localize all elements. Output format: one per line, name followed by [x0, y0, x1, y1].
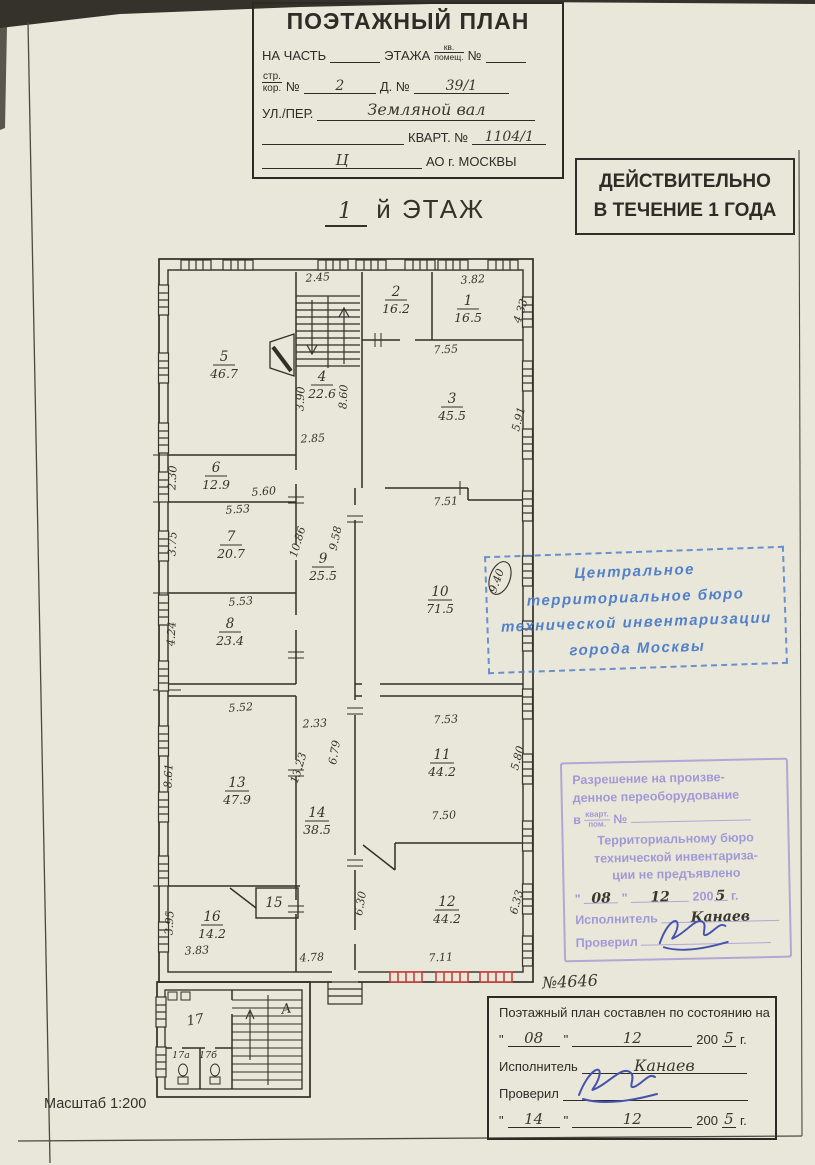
dim-label: 3.82 — [460, 272, 485, 287]
room-label-16: 1614.2 — [198, 909, 226, 941]
date1-month: 12 — [572, 1031, 692, 1047]
label-ul-per: УЛ./ПЕР. — [262, 106, 313, 121]
svg-text:71.5: 71.5 — [426, 601, 454, 616]
dim-label: 7.50 — [431, 808, 456, 822]
dim-label: 4.24 — [164, 621, 178, 647]
permit-line-3: в кварт.пом. № — [573, 806, 777, 830]
date2-year-hand: 5 — [722, 1112, 736, 1128]
ao-value: Ц — [262, 153, 422, 169]
room-label-9: 925.5 — [308, 551, 337, 583]
blank-floor-part — [330, 47, 380, 63]
dim-label: 7.53 — [433, 712, 458, 726]
fraction-kvart-pom: кварт.пом. — [584, 811, 610, 830]
dim-label: 3.95 — [162, 910, 176, 935]
porch-steps — [328, 982, 362, 1004]
windows-left-wall — [156, 285, 169, 1077]
dim-label: 2.33 — [301, 716, 327, 730]
header-row-ao: Ц АО г. МОСКВЫ — [262, 153, 554, 169]
checker-signature — [571, 1061, 661, 1105]
dim-label: 6.79 — [326, 739, 343, 765]
date1-day: 08 — [508, 1031, 560, 1047]
label-ao-moscow: АО г. МОСКВЫ — [426, 154, 517, 169]
entrance-vestibule — [270, 334, 294, 376]
street-value: Земляной вал — [317, 102, 535, 121]
dim-label: 5.53 — [225, 502, 250, 517]
svg-text:9: 9 — [319, 551, 328, 567]
svg-text:7: 7 — [227, 529, 236, 545]
toilet-symbol — [178, 1064, 188, 1084]
svg-text:16: 16 — [203, 909, 221, 925]
permit-date-row: " 08 " 12 2005 г. — [575, 885, 779, 908]
dim-label: 6.30 — [352, 890, 369, 916]
label-na-chast: НА ЧАСТЬ — [262, 48, 326, 63]
fixture-box — [168, 992, 177, 1000]
permit-line-2: денное переоборудование — [573, 785, 777, 807]
svg-text:5: 5 — [220, 349, 229, 365]
svg-text:23.4: 23.4 — [215, 633, 244, 648]
floor-title: 1 й ЭТАЖ — [325, 194, 485, 227]
label-kvart-no: КВАРТ. № — [408, 130, 468, 145]
room-label-7: 720.7 — [216, 529, 245, 561]
svg-text:8: 8 — [226, 616, 235, 632]
svg-text:14.2: 14.2 — [198, 926, 226, 941]
room-label-11: 1144.2 — [427, 747, 456, 779]
dim-label: 5.52 — [228, 700, 253, 715]
validity-line-2: В ТЕЧЕНИЕ 1 ГОДА — [581, 197, 789, 226]
date1-year-hand: 5 — [722, 1031, 736, 1047]
scanned-floor-plan-page: { "misc": { "quote": "\"" }, "header_box… — [0, 0, 815, 1165]
room-label-4: 422.6 — [307, 369, 336, 401]
svg-text:44.2: 44.2 — [432, 911, 461, 926]
dim-label: 7.55 — [433, 342, 458, 356]
dim-label: 5.53 — [228, 594, 253, 609]
room-label-3: 345.5 — [437, 391, 466, 423]
svg-text:3: 3 — [448, 391, 457, 407]
scale-label: Масштаб 1:200 — [44, 1096, 146, 1112]
checker-signature — [653, 911, 732, 953]
svg-text:1: 1 — [464, 293, 473, 309]
bottom-date-row-2: " 14 " 12 2005 г. — [499, 1112, 765, 1128]
validity-line-1: ДЕЙСТВИТЕЛЬНО — [581, 168, 789, 197]
label-no: № — [286, 79, 300, 94]
permit-blank — [630, 806, 750, 823]
header-row-street: УЛ./ПЕР. Земляной вал — [262, 102, 554, 121]
dim-label: 2.30 — [165, 465, 179, 491]
dim-label: 2.45 — [304, 270, 330, 285]
header-row-floor: НА ЧАСТЬ ЭТАЖА кв.помещ. № — [262, 43, 554, 63]
dim-label: 13.23 — [288, 751, 310, 785]
room-label-17a: 17а — [172, 1050, 190, 1061]
validity-stamp-box: ДЕЙСТВИТЕЛЬНО В ТЕЧЕНИЕ 1 ГОДА — [575, 158, 795, 235]
dim-label: 8.61 — [161, 763, 175, 788]
permit-purple-stamp: Разрешение на произве- денное переоборуд… — [560, 758, 792, 963]
label-no: № — [468, 48, 482, 63]
stair-arrow-down — [307, 300, 317, 354]
room-label-1: 116.5 — [454, 293, 482, 325]
windows-red-bottom — [390, 972, 512, 982]
dim-label: 7.51 — [433, 494, 458, 508]
dim-label: 3.90 — [293, 386, 307, 411]
header-form-box: ПОЭТАЖНЫЙ ПЛАН НА ЧАСТЬ ЭТАЖА кв.помещ. … — [252, 2, 564, 179]
toilet-symbol — [210, 1064, 220, 1084]
fraction-kv-pomesch: кв.помещ. — [434, 43, 463, 63]
svg-text:46.7: 46.7 — [209, 366, 238, 381]
svg-text:11: 11 — [433, 747, 450, 763]
building-number-value: 2 — [304, 78, 376, 94]
windows-top-wall — [181, 260, 518, 270]
label-d-no: Д. № — [380, 79, 410, 94]
svg-text:2: 2 — [391, 284, 401, 300]
page-border-right — [799, 150, 802, 1136]
fraction-str-kor: стр.кор. — [262, 71, 282, 94]
permit-date-month: 12 — [631, 887, 689, 902]
floor-title-text: й ЭТАЖ — [376, 194, 485, 224]
stair-letter: А — [279, 1000, 292, 1017]
bti-blue-stamp: Центральное территориальное бюро техниче… — [484, 546, 788, 674]
svg-text:12.9: 12.9 — [202, 477, 230, 492]
svg-text:38.5: 38.5 — [303, 822, 331, 837]
svg-text:4: 4 — [317, 369, 327, 385]
annex-stair-arrow — [246, 1010, 254, 1060]
bottom-date-row-1: " 08 " 12 2005 г. — [499, 1031, 765, 1047]
bottom-box-title: Поэтажный план составлен по состоянию на — [499, 1005, 765, 1020]
bottom-checked-row: Проверил — [499, 1085, 748, 1101]
header-row-kvartal: КВАРТ. № 1104/1 — [262, 129, 554, 145]
date2-month: 12 — [572, 1112, 692, 1128]
svg-text:22.6: 22.6 — [307, 386, 336, 401]
room-label-12: 1244.2 — [432, 894, 461, 926]
svg-text:14: 14 — [308, 805, 325, 821]
room-label-14: 1438.5 — [303, 805, 331, 837]
room-label-13: 1347.9 — [222, 775, 251, 807]
permit-date-day: 08 — [584, 889, 618, 904]
permit-date-year-hand: 5 — [713, 886, 727, 900]
label-etazha: ЭТАЖА — [384, 48, 430, 63]
svg-text:16.2: 16.2 — [382, 301, 410, 316]
svg-text:25.5: 25.5 — [308, 568, 337, 583]
room-label-17b: 17б — [199, 1050, 217, 1061]
fixture-box — [181, 992, 190, 1000]
svg-text:20.7: 20.7 — [216, 546, 245, 561]
room-label-15: 15 — [265, 895, 282, 911]
blank-kv-no — [486, 47, 526, 63]
dim-label: 10.86 — [287, 525, 309, 559]
blank-line — [262, 129, 404, 145]
svg-text:6: 6 — [212, 460, 221, 476]
kvartal-value: 1104/1 — [472, 129, 546, 145]
dim-label: 4.78 — [298, 950, 324, 964]
room-labels: 116.5 216.2 345.5 422.6 546.7 612.9 720.… — [172, 284, 482, 1061]
room-label-6: 612.9 — [202, 460, 230, 492]
dim-label: 2.85 — [299, 431, 325, 445]
main-staircase — [296, 296, 360, 368]
date2-day: 14 — [508, 1112, 560, 1128]
page-border-left — [28, 22, 50, 1163]
svg-text:45.5: 45.5 — [437, 408, 466, 423]
dim-label: 3.75 — [165, 531, 179, 556]
room-label-8: 823.4 — [215, 616, 244, 648]
dim-label: 7.11 — [428, 950, 453, 964]
dim-label: 9.58 — [327, 525, 345, 552]
plan-number: №4646 — [542, 971, 599, 993]
room-label-10: 1071.5 — [426, 584, 454, 616]
permit-checked-row: Проверил — [575, 929, 771, 953]
room-label-2: 216.2 — [382, 284, 410, 316]
floor-number: 1 — [338, 199, 354, 224]
room-label-17: 17 — [185, 1011, 205, 1030]
svg-text:10: 10 — [431, 584, 449, 600]
svg-text:16.5: 16.5 — [454, 310, 482, 325]
dim-label: 3.83 — [184, 943, 209, 957]
header-row-building: стр.кор. № 2 Д. № 39/1 — [262, 71, 554, 94]
svg-text:44.2: 44.2 — [427, 764, 456, 779]
document-title: ПОЭТАЖНЫЙ ПЛАН — [262, 8, 554, 35]
dim-label: 8.60 — [336, 384, 350, 409]
house-number-value: 39/1 — [414, 78, 509, 94]
dim-label: 5.60 — [251, 484, 276, 499]
room-label-5: 546.7 — [209, 349, 238, 381]
floor-number-underline: 1 — [325, 194, 367, 227]
svg-text:13: 13 — [228, 775, 245, 791]
svg-text:47.9: 47.9 — [222, 792, 251, 807]
svg-text:12: 12 — [438, 894, 455, 910]
bottom-signature-box: Поэтажный план составлен по состоянию на… — [487, 996, 777, 1140]
